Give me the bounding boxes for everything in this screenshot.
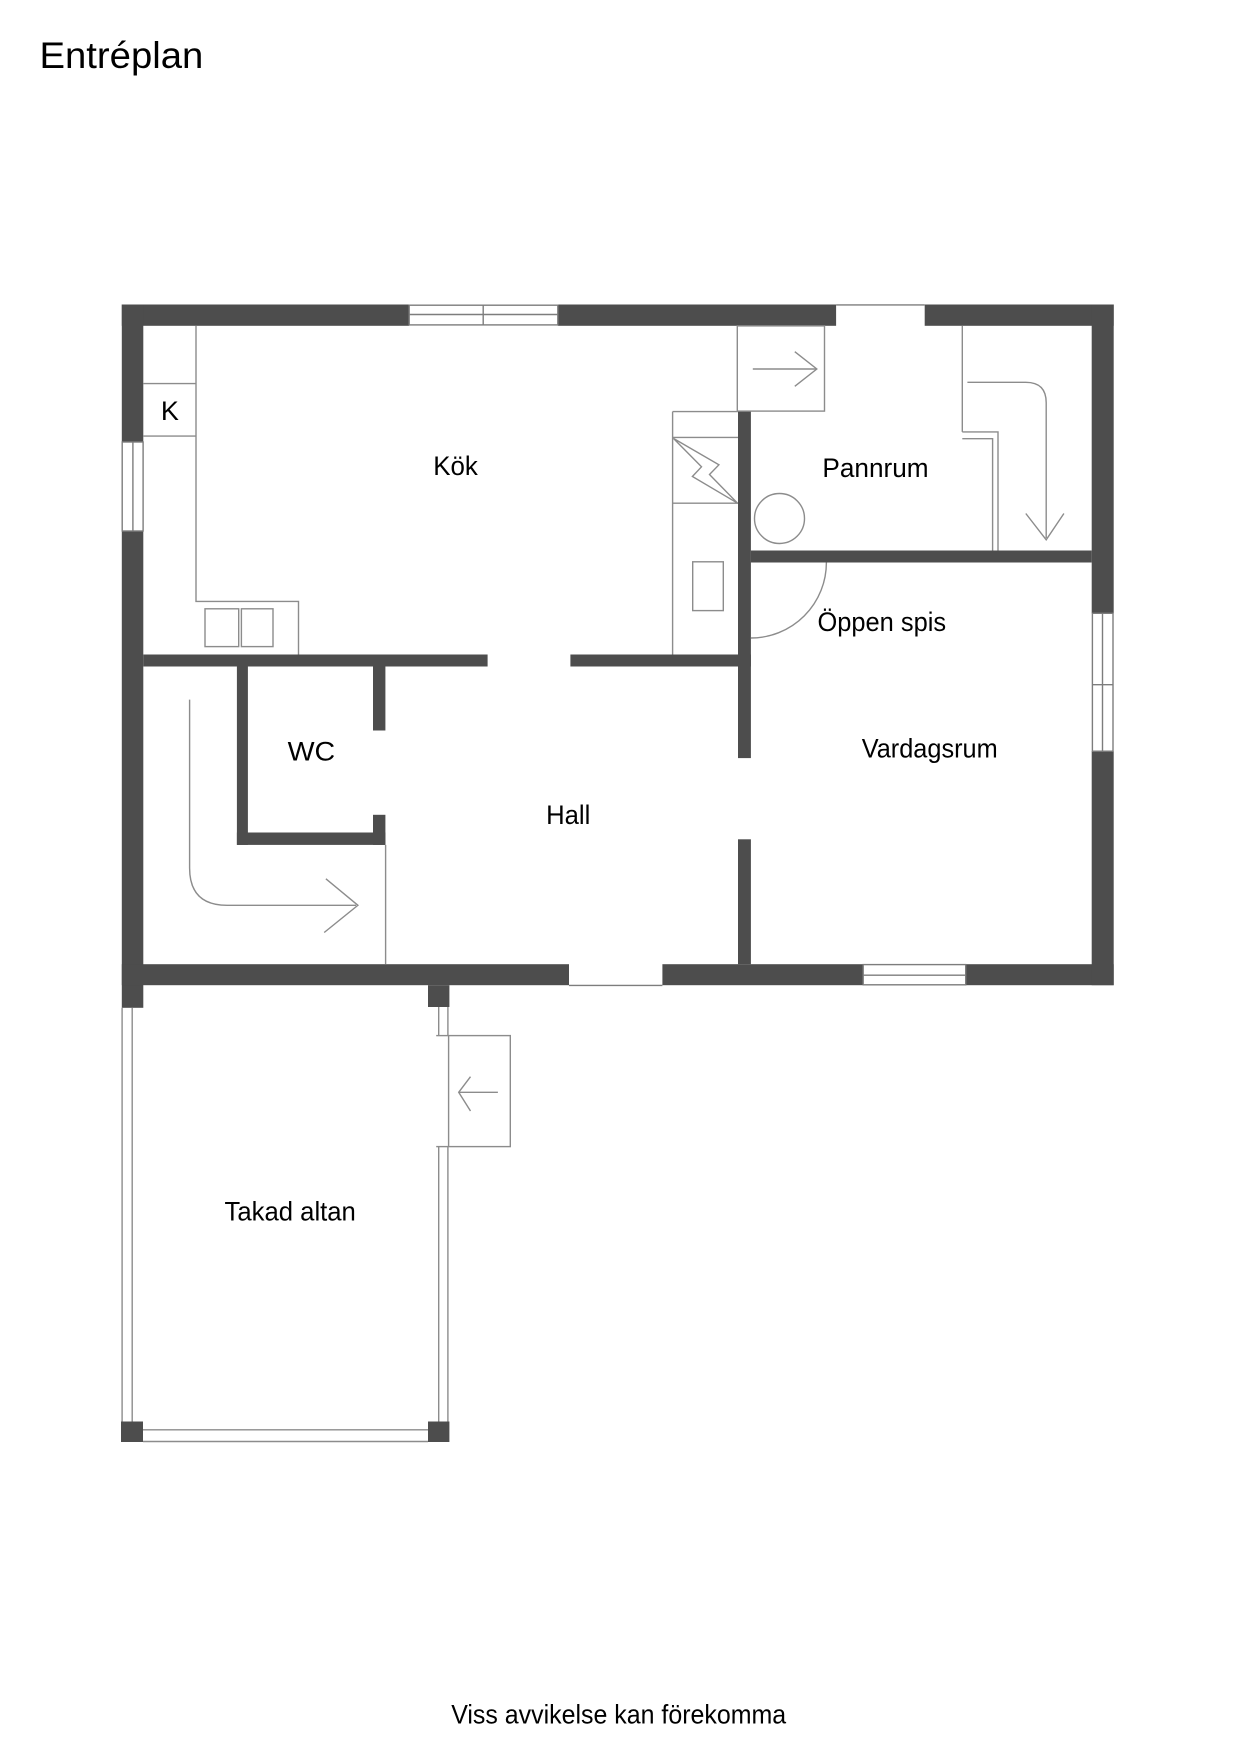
svg-text:Pannrum: Pannrum <box>822 453 928 483</box>
svg-text:Kök: Kök <box>433 451 478 481</box>
svg-text:WC: WC <box>288 737 336 767</box>
svg-text:Vardagsrum: Vardagsrum <box>862 734 998 764</box>
svg-text:K: K <box>161 396 179 426</box>
svg-text:Entréplan: Entréplan <box>40 35 204 76</box>
svg-text:Öppen spis: Öppen spis <box>818 607 947 637</box>
svg-text:Hall: Hall <box>546 800 590 830</box>
svg-text:Takad altan: Takad altan <box>225 1197 356 1227</box>
svg-text:Viss avvikelse kan förekomma: Viss avvikelse kan förekomma <box>451 1700 787 1730</box>
